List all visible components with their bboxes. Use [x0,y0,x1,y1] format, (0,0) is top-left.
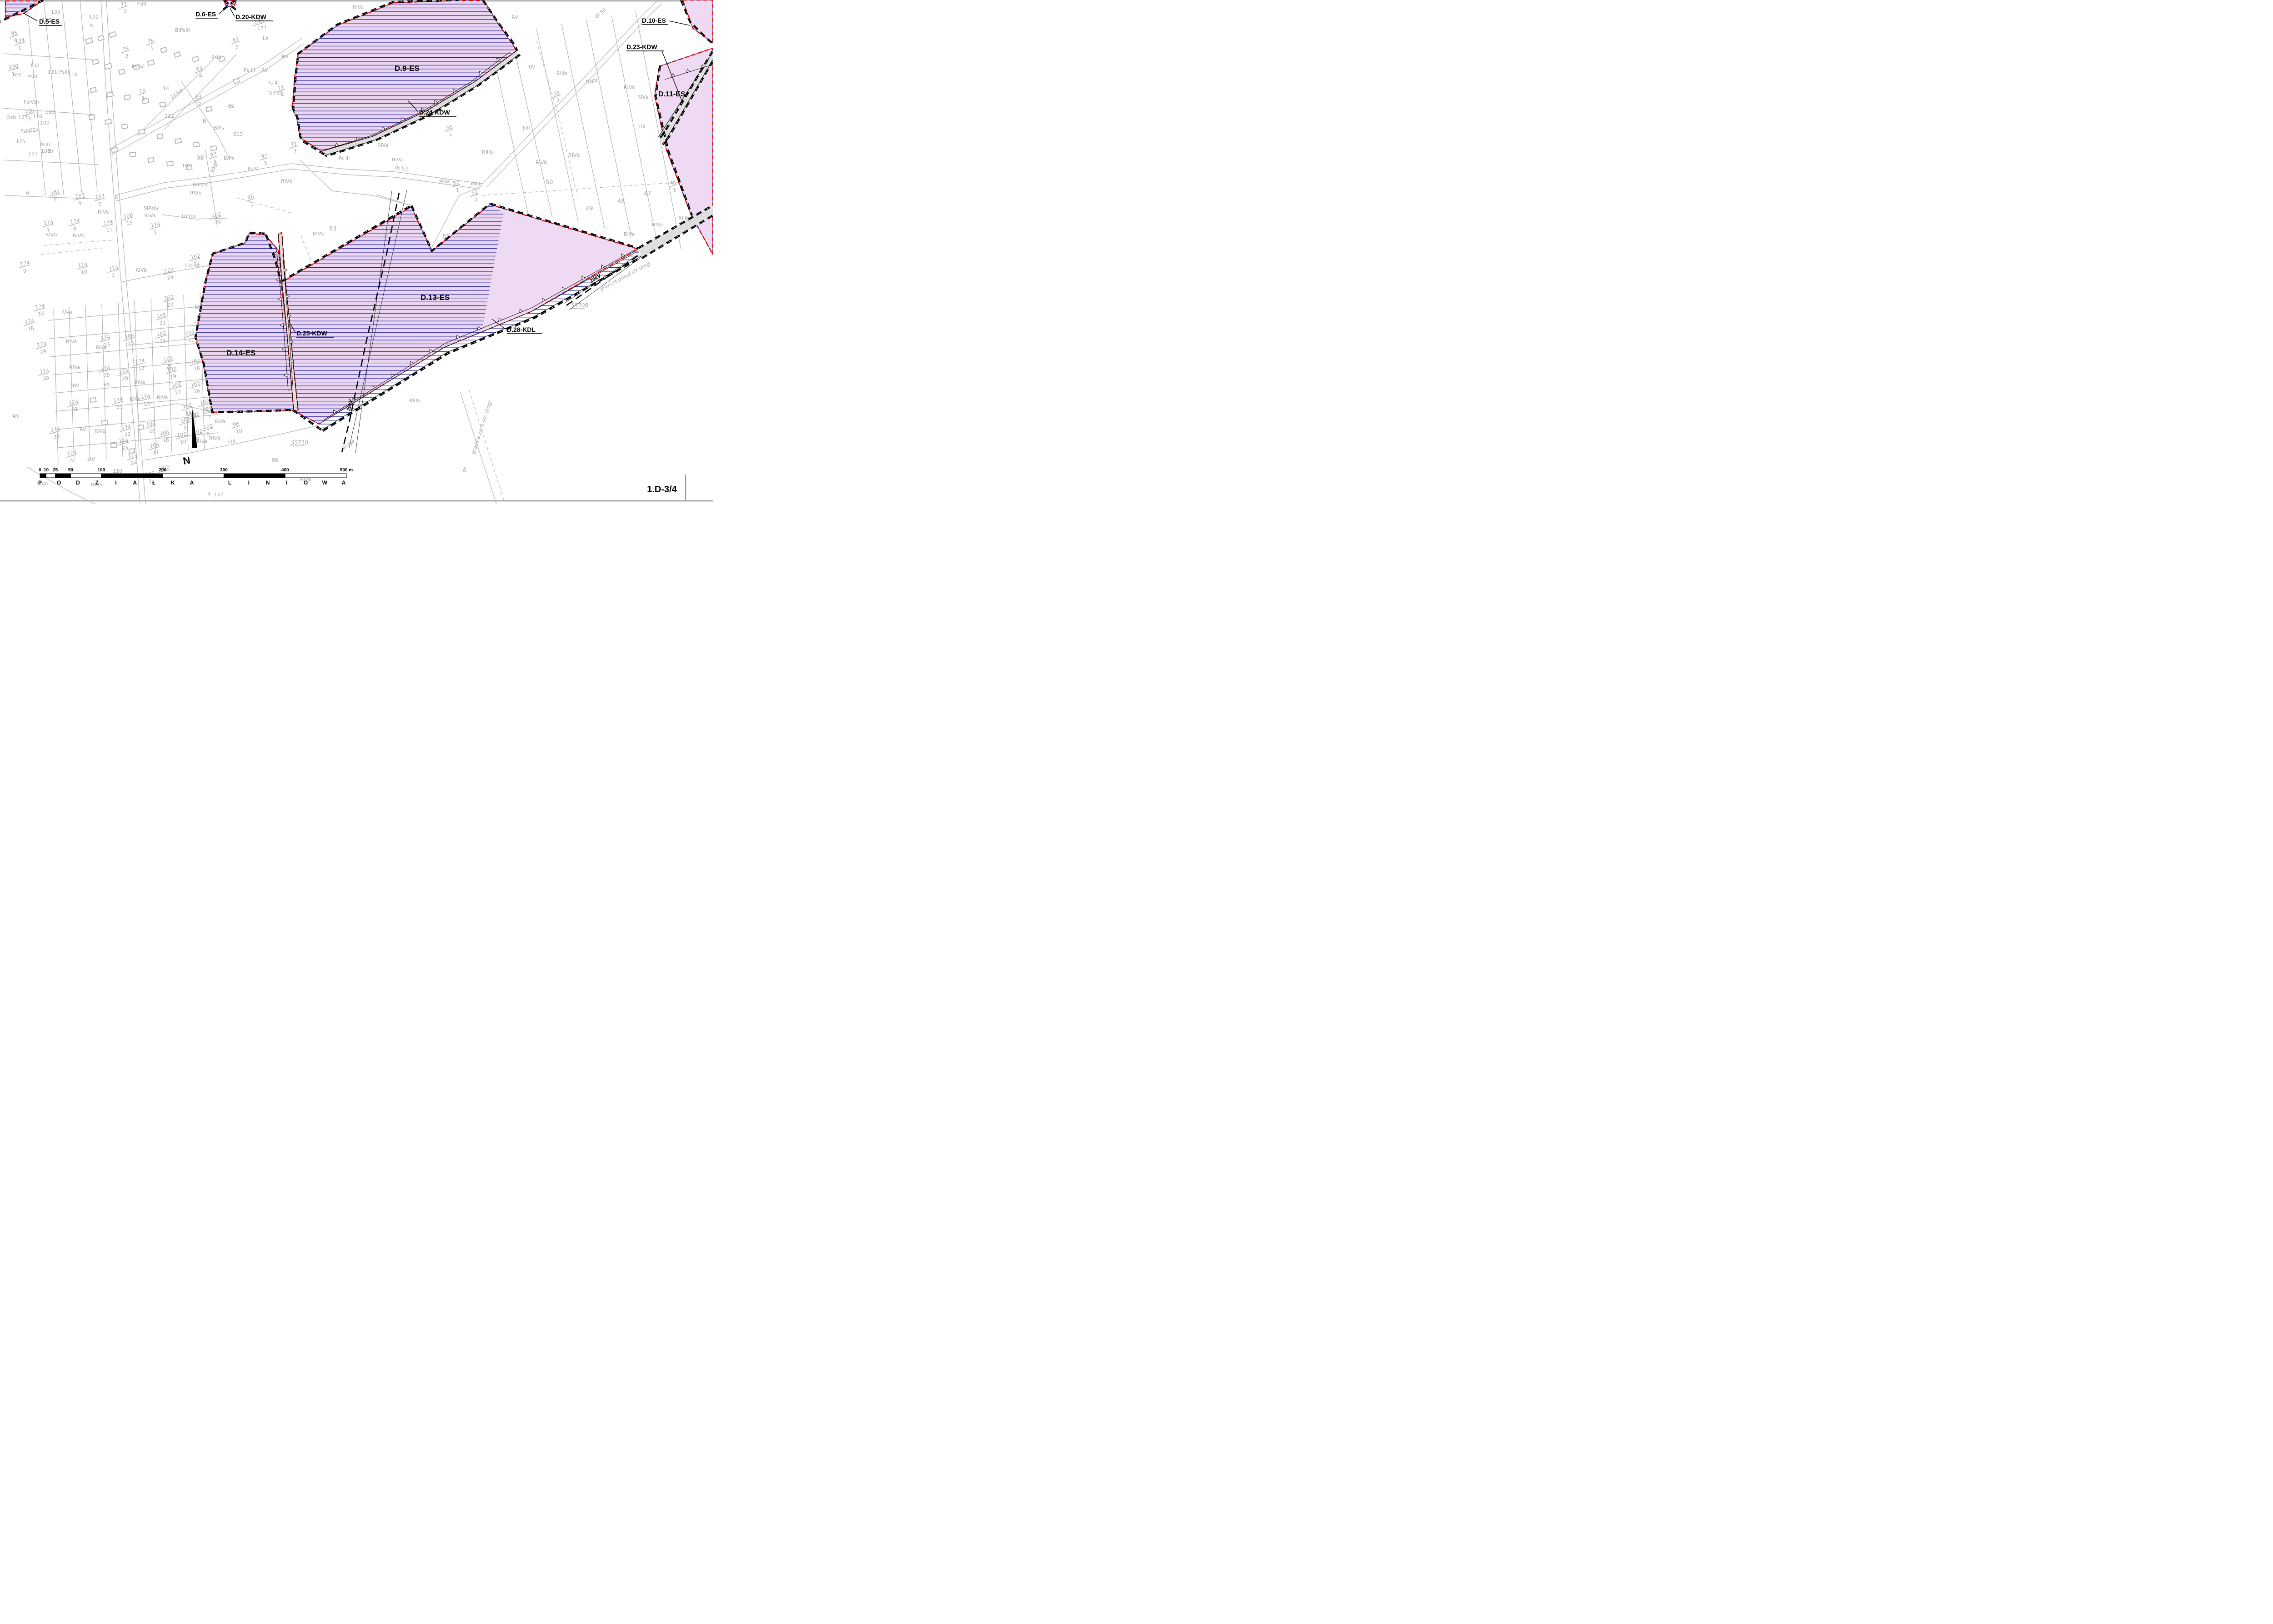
map-annotation: sb [229,103,235,109]
map-annotation: RIVa [353,4,364,10]
map-annotation: dr 56 [594,7,608,20]
parcel-number: 1748 [68,218,81,233]
parcel-line [85,305,90,460]
map-annotation: RIIIb [471,181,482,187]
building-footprint [105,119,111,124]
map-annotation: BIPs [214,125,224,131]
svg-text:15: 15 [143,400,150,407]
svg-text:3: 3 [98,201,102,207]
sheet-number: 1.D-3/4 [640,485,684,495]
parcel-line [62,0,82,193]
svg-text:24: 24 [167,274,174,281]
map-annotation: 55708 [571,302,589,309]
zone-D.10-ES [683,0,713,43]
map-annotation: RV [511,15,518,20]
svg-text:177: 177 [257,25,267,32]
map-annotation: 127 [18,115,28,120]
svg-text:2: 2 [125,53,129,59]
map-annotation: B/Ps [224,155,235,161]
svg-text:24: 24 [130,460,138,466]
map-annotation: RIIIb [409,398,420,404]
parcel-line-dashed [41,248,105,255]
svg-text:22: 22 [124,431,131,438]
parcel-number: 17422 [119,424,132,439]
svg-text:1: 1 [672,187,676,193]
scale-bar-segment [285,474,346,478]
svg-text:1: 1 [141,95,145,101]
svg-text:96: 96 [232,421,240,428]
map-annotation: BIPsIV [193,182,208,188]
map-annotation: 103dr [181,214,196,220]
svg-text:1: 1 [18,45,22,51]
svg-text:4: 4 [280,92,285,98]
svg-text:12: 12 [138,365,145,372]
building-footprint [192,56,199,62]
map-annotation: ŁIII [228,439,235,445]
parcel-number: 10222 [162,294,175,309]
building-footprint [105,63,112,69]
svg-text:55: 55 [446,124,453,131]
parcel-number: 17411 [101,219,114,234]
parcel-number: 1674 [73,192,86,207]
building-footprint [111,443,117,448]
zone-label-D.24-KDW: D.24-KDW [419,109,450,116]
scale-tick-label: 50 [68,468,74,473]
map-annotation: RIVb [98,209,109,215]
building-footprint [147,60,154,66]
parcel-number: 10210 [175,431,188,446]
parcel-line-dashed [44,240,114,245]
building-footprint [109,32,116,38]
north-arrow-and-scale: N0102550100200300400500 mPODZIAŁKALINIOW… [38,408,353,486]
map-annotation: RIVa [637,94,648,100]
parcel-line [4,160,98,165]
zone-label-D.5-ES: D.5-ES [39,18,60,25]
svg-text:77: 77 [120,1,127,8]
svg-text:29: 29 [40,348,47,355]
map-annotation: N [90,23,94,29]
parcel-line [536,29,578,222]
svg-text:1: 1 [449,131,453,138]
svg-text:31: 31 [71,406,79,413]
svg-text:17: 17 [152,449,160,456]
map-annotation: PsIII [136,1,146,7]
scale-tick-label: 25 [53,468,58,473]
map-annotation: PsIII [59,69,69,75]
parcel-number: 552 [551,90,561,105]
parcel-number: 1673 [93,193,106,208]
parcel-line [80,0,97,191]
svg-text:23: 23 [121,445,129,451]
scale-bar-segment [224,474,285,478]
building-footprint [92,59,99,65]
map-annotation: ŁIII [638,124,646,130]
building-footprint [175,138,181,143]
parcel-number: 10217 [169,381,182,396]
zone-label-D.11-ES: D.11-ES [658,90,686,98]
building-footprint [121,124,127,129]
svg-text:4: 4 [199,73,203,79]
svg-text:3: 3 [213,159,217,165]
svg-text:1: 1 [250,201,254,207]
map-annotation: 125 [16,139,25,145]
building-footprint [119,69,125,75]
map-annotation: ŁIV [87,456,95,462]
svg-text:2: 2 [123,8,127,15]
svg-text:52: 52 [452,180,460,186]
svg-text:97: 97 [210,151,217,158]
svg-text:2: 2 [474,196,478,203]
map-annotation: Ps III [244,67,255,73]
label-leader [219,6,228,14]
map-annotation: 6 [26,190,29,196]
map-annotation: SIPsIV [144,205,159,211]
map-annotation: RIVb [624,85,635,90]
svg-text:20: 20 [121,375,129,382]
map-annotation: RIVa [95,428,105,434]
svg-text:13: 13 [103,341,110,348]
parcel-number: 17418 [22,318,35,333]
building-footprint [206,106,212,112]
map-annotation: RIVb [73,233,84,239]
parcel-line [561,24,605,228]
parcel-number: 17412 [133,358,146,373]
scale-title-letter: O [57,480,61,486]
map-annotation: RIVb [209,435,220,441]
map-annotation: RIVa [134,380,145,385]
map-annotation: RV [261,67,268,73]
parcel-number: 635 [230,36,240,51]
tick-triangle [284,268,287,272]
svg-text:73: 73 [138,88,145,95]
map-annotation: B [115,195,118,200]
parcel-number: 551 [444,124,454,139]
parcel-number: 17431 [66,399,80,414]
map-annotation: RV [104,382,110,388]
building-footprint [130,152,136,157]
label-leader [23,13,37,21]
parcel-line [115,173,236,195]
parcel-number: 461 [667,180,678,194]
building-footprint [90,87,96,92]
svg-text:30: 30 [42,375,50,382]
parcel-number: 521 [451,180,461,194]
map-annotation: Br [48,148,54,154]
svg-text:19: 19 [170,373,177,380]
map-annotation: 101 [182,163,191,169]
map-annotation: 83 [329,225,337,232]
building-footprint [167,161,173,166]
map-annotation: 96 [272,457,278,463]
svg-text:27: 27 [193,260,200,267]
parcel-number: 1744 [65,450,78,465]
parcel-number: 717 [288,141,299,155]
building-footprint [89,115,95,120]
planning-map-sheet: RIVaRIVaRIVaRIVbRIVbRIVbRIVbRIVbRIVaRIVa… [0,0,713,504]
scale-title-letter: D [76,480,80,486]
map-annotation: RIVb [281,178,292,184]
building-footprint [174,52,180,58]
map-annotation: RV [80,426,86,432]
parcel-number: 17432 [48,426,61,441]
parcel-line [102,304,106,459]
scale-bar-segment [55,474,71,478]
parcel-number: 10615 [121,212,134,227]
svg-text:55: 55 [553,90,560,97]
map-annotation: Ps III [338,155,350,161]
parcel-number: 10219 [165,366,178,381]
map-annotation: dr 53 [395,165,409,172]
zone-label-D.6-ES: D.6-ES [195,10,216,18]
map-annotation: 122 [89,15,99,20]
scale-bar-segment [70,474,101,478]
map-annotation: 124 [30,127,39,133]
svg-text:1: 1 [153,229,157,235]
parcel-line [486,4,662,187]
map-annotation: PsIII [20,128,30,134]
map-annotation: 131 [48,69,57,75]
svg-text:7: 7 [46,227,50,233]
svg-text:71: 71 [290,141,297,148]
map-annotation: RIIIb [556,70,567,76]
svg-text:8: 8 [73,225,77,232]
scale-title-letter: W [322,480,328,486]
svg-text:10: 10 [180,439,187,445]
zone-label-D.20-KDW: D.20-KDW [235,13,266,20]
svg-text:76: 76 [147,38,154,45]
svg-text:2: 2 [198,101,202,107]
svg-text:5: 5 [264,160,268,166]
zone-D.13-ES [281,205,504,424]
svg-text:16: 16 [193,388,200,395]
svg-text:18: 18 [162,437,170,444]
parcel-number: 792 [120,45,130,60]
parcel-number: 17410 [75,261,89,276]
parcel-number: 10522 [154,312,167,327]
parcel-line [101,0,140,504]
parcel-number: 10216 [188,380,201,395]
map-annotation: 613 [233,131,243,137]
scale-title-letter: L [228,480,231,486]
parcel-line [511,36,552,217]
svg-text:23: 23 [127,340,135,347]
map-annotation: RIVa [215,419,225,425]
map-annotation: 132 [30,63,40,69]
parcel-number: 1741 [148,221,161,236]
svg-text:21: 21 [188,337,195,344]
map-annotation: Ls [263,35,268,41]
svg-text:96: 96 [247,194,254,200]
map-annotation: 55710 [291,440,309,446]
building-footprint [160,102,166,107]
map-annotation: 47 [644,190,651,197]
svg-text:30: 30 [214,219,221,225]
map-annotation: RIVb [568,152,580,158]
scale-title-letter: I [286,480,287,486]
svg-text:97: 97 [260,153,268,160]
parcel-number: 17430 [37,368,50,383]
parcel-line [111,44,304,155]
svg-text:85: 85 [10,30,18,37]
building-footprint [107,92,114,97]
map-annotation: RIVa [61,309,72,315]
zone-label-D.10-ES: D.10-ES [642,17,666,24]
svg-text:25: 25 [103,372,110,379]
parcel-number: 1025 [178,417,191,432]
map-annotation: PsIV [248,166,258,172]
building-footprint [233,78,240,84]
parcel-number: 1341 [13,37,26,52]
map-annotation: B [207,491,211,497]
map-annotation: 48 [617,198,625,205]
parcel-line [44,0,64,195]
map-annotation: RIVa [69,365,80,370]
map-annotation: 135 [51,9,60,15]
parcel-number: 1742 [106,265,120,280]
svg-text:71: 71 [277,85,285,91]
map-annotation: RIVa [130,396,140,402]
svg-text:63: 63 [195,65,203,72]
svg-text:11: 11 [106,226,113,233]
north-label: N [182,455,191,467]
parcel-line [54,309,58,464]
scale-bar-segment [40,474,46,478]
scale-title-letter: Z [95,480,99,486]
parcel-number: 17425 [98,365,111,380]
svg-text:18: 18 [193,365,200,372]
svg-text:22: 22 [159,320,166,326]
svg-text:63: 63 [195,94,202,100]
map-annotation: PsIV [439,179,450,185]
zone-label-D.9-ES: D.9-ES [395,64,420,73]
planning-zones [5,0,713,424]
svg-text:52: 52 [471,189,478,196]
svg-text:10: 10 [235,428,243,435]
svg-text:3: 3 [27,115,31,122]
scale-tick-label: 200 [159,468,166,473]
map-annotation: PsIII [27,74,37,80]
map-annotation: RV [529,64,536,70]
map-annotation: RNIb [586,77,598,85]
map-annotation: 109 [40,120,50,126]
svg-text:21: 21 [116,404,123,410]
parcel-line [460,392,496,504]
parcel-number: 17421 [111,396,124,411]
svg-text:17: 17 [174,389,181,395]
svg-text:63: 63 [232,36,239,43]
svg-text:4: 4 [70,457,74,464]
map-annotation: RIVb [536,160,547,165]
building-footprint [102,420,108,425]
scale-title-letter: K [171,480,175,486]
map-annotation: Br [34,99,40,105]
map-annotation: 107 [28,151,38,157]
scale-tick-label: 500 m [340,468,353,473]
map-annotation: RIVb [190,190,201,196]
parcel-number: 522 [469,189,480,204]
parcel-number: 9610 [230,420,242,435]
scale-bar-segment [46,474,55,478]
map-canvas: RIVaRIVaRIVaRIVbRIVbRIVbRIVbRIVbRIVaRIVa… [0,0,713,504]
building-footprint [111,148,117,153]
building-footprint [139,129,145,134]
parcel-line-dashed [482,182,686,195]
map-annotation: RIVa [652,222,663,228]
parcel-number: 975 [259,153,269,167]
scale-tick-label: 100 [97,468,105,473]
parcel-number: 961 [245,194,255,208]
map-annotation: RV [13,414,20,420]
scale-title-letter: A [342,480,346,486]
svg-text:1: 1 [150,45,154,51]
map-annotation: RIVa [66,339,77,345]
label-leader [669,21,690,25]
map-annotation: RIVa [377,142,388,148]
scale-title-letter: I [115,480,116,486]
map-annotation: PsIII [40,142,50,148]
building-footprint [210,146,216,151]
map-annotation: RIVa [145,213,155,219]
map-annotation: Ps III [267,80,279,86]
parcel-number: 772 [118,1,129,15]
parcel-number: 17420 [116,368,130,383]
parcel-line-dashed [536,41,577,195]
map-annotation: ŁIII [522,125,530,131]
parcel-number: 761 [145,38,155,52]
parcel-number: 17416 [33,303,46,318]
scale-title-letter: Ł [152,480,155,486]
map-annotation: PsIII [211,55,221,60]
map-annotation: RIIIb [482,149,493,155]
map-annotation: N [203,118,206,124]
parcel-number: 10224 [162,267,175,282]
svg-text:22: 22 [167,301,174,308]
svg-text:3: 3 [148,478,152,485]
scale-title-letter: A [133,480,137,486]
map-annotation: 172 [214,492,223,498]
svg-text:9: 9 [23,268,27,274]
parcel-number: 17423 [116,437,130,452]
scale-title-letter: N [266,480,270,486]
map-annotation: RIVb [313,231,324,237]
scale-tick-label: 10 [44,468,49,473]
zone-label-D.23-KDW: D.23-KDW [626,43,657,50]
map-annotation: 110 [113,468,122,474]
map-annotation: granica zach str. drogi [470,400,493,455]
parcel-number: 10618 [157,430,170,445]
building-footprint [138,425,144,430]
parcel-number: 17424 [125,452,139,467]
zone-label-D.14-ES: D.14-ES [226,349,255,357]
zone-label-D.13-ES: D.13-ES [421,293,450,302]
svg-text:15: 15 [126,220,133,226]
parcel-number: 10223 [154,330,167,345]
map-annotation: 116 [33,114,42,120]
svg-text:7: 7 [293,148,297,155]
map-annotation: 49 [586,205,593,212]
zone-label-D.25-KDW: D.25-KDW [296,330,327,337]
map-annotation: 50 [546,179,553,186]
svg-text:20: 20 [149,428,156,435]
zone-label-D.28-KDL: D.28-KDL [507,326,536,333]
building-footprint [157,134,163,139]
svg-text:32: 32 [53,433,60,440]
svg-text:4: 4 [78,200,82,206]
svg-text:16: 16 [38,310,45,317]
scale-title-letter: O [304,480,308,486]
svg-text:79: 79 [122,45,129,52]
svg-text:1: 1 [456,187,460,193]
